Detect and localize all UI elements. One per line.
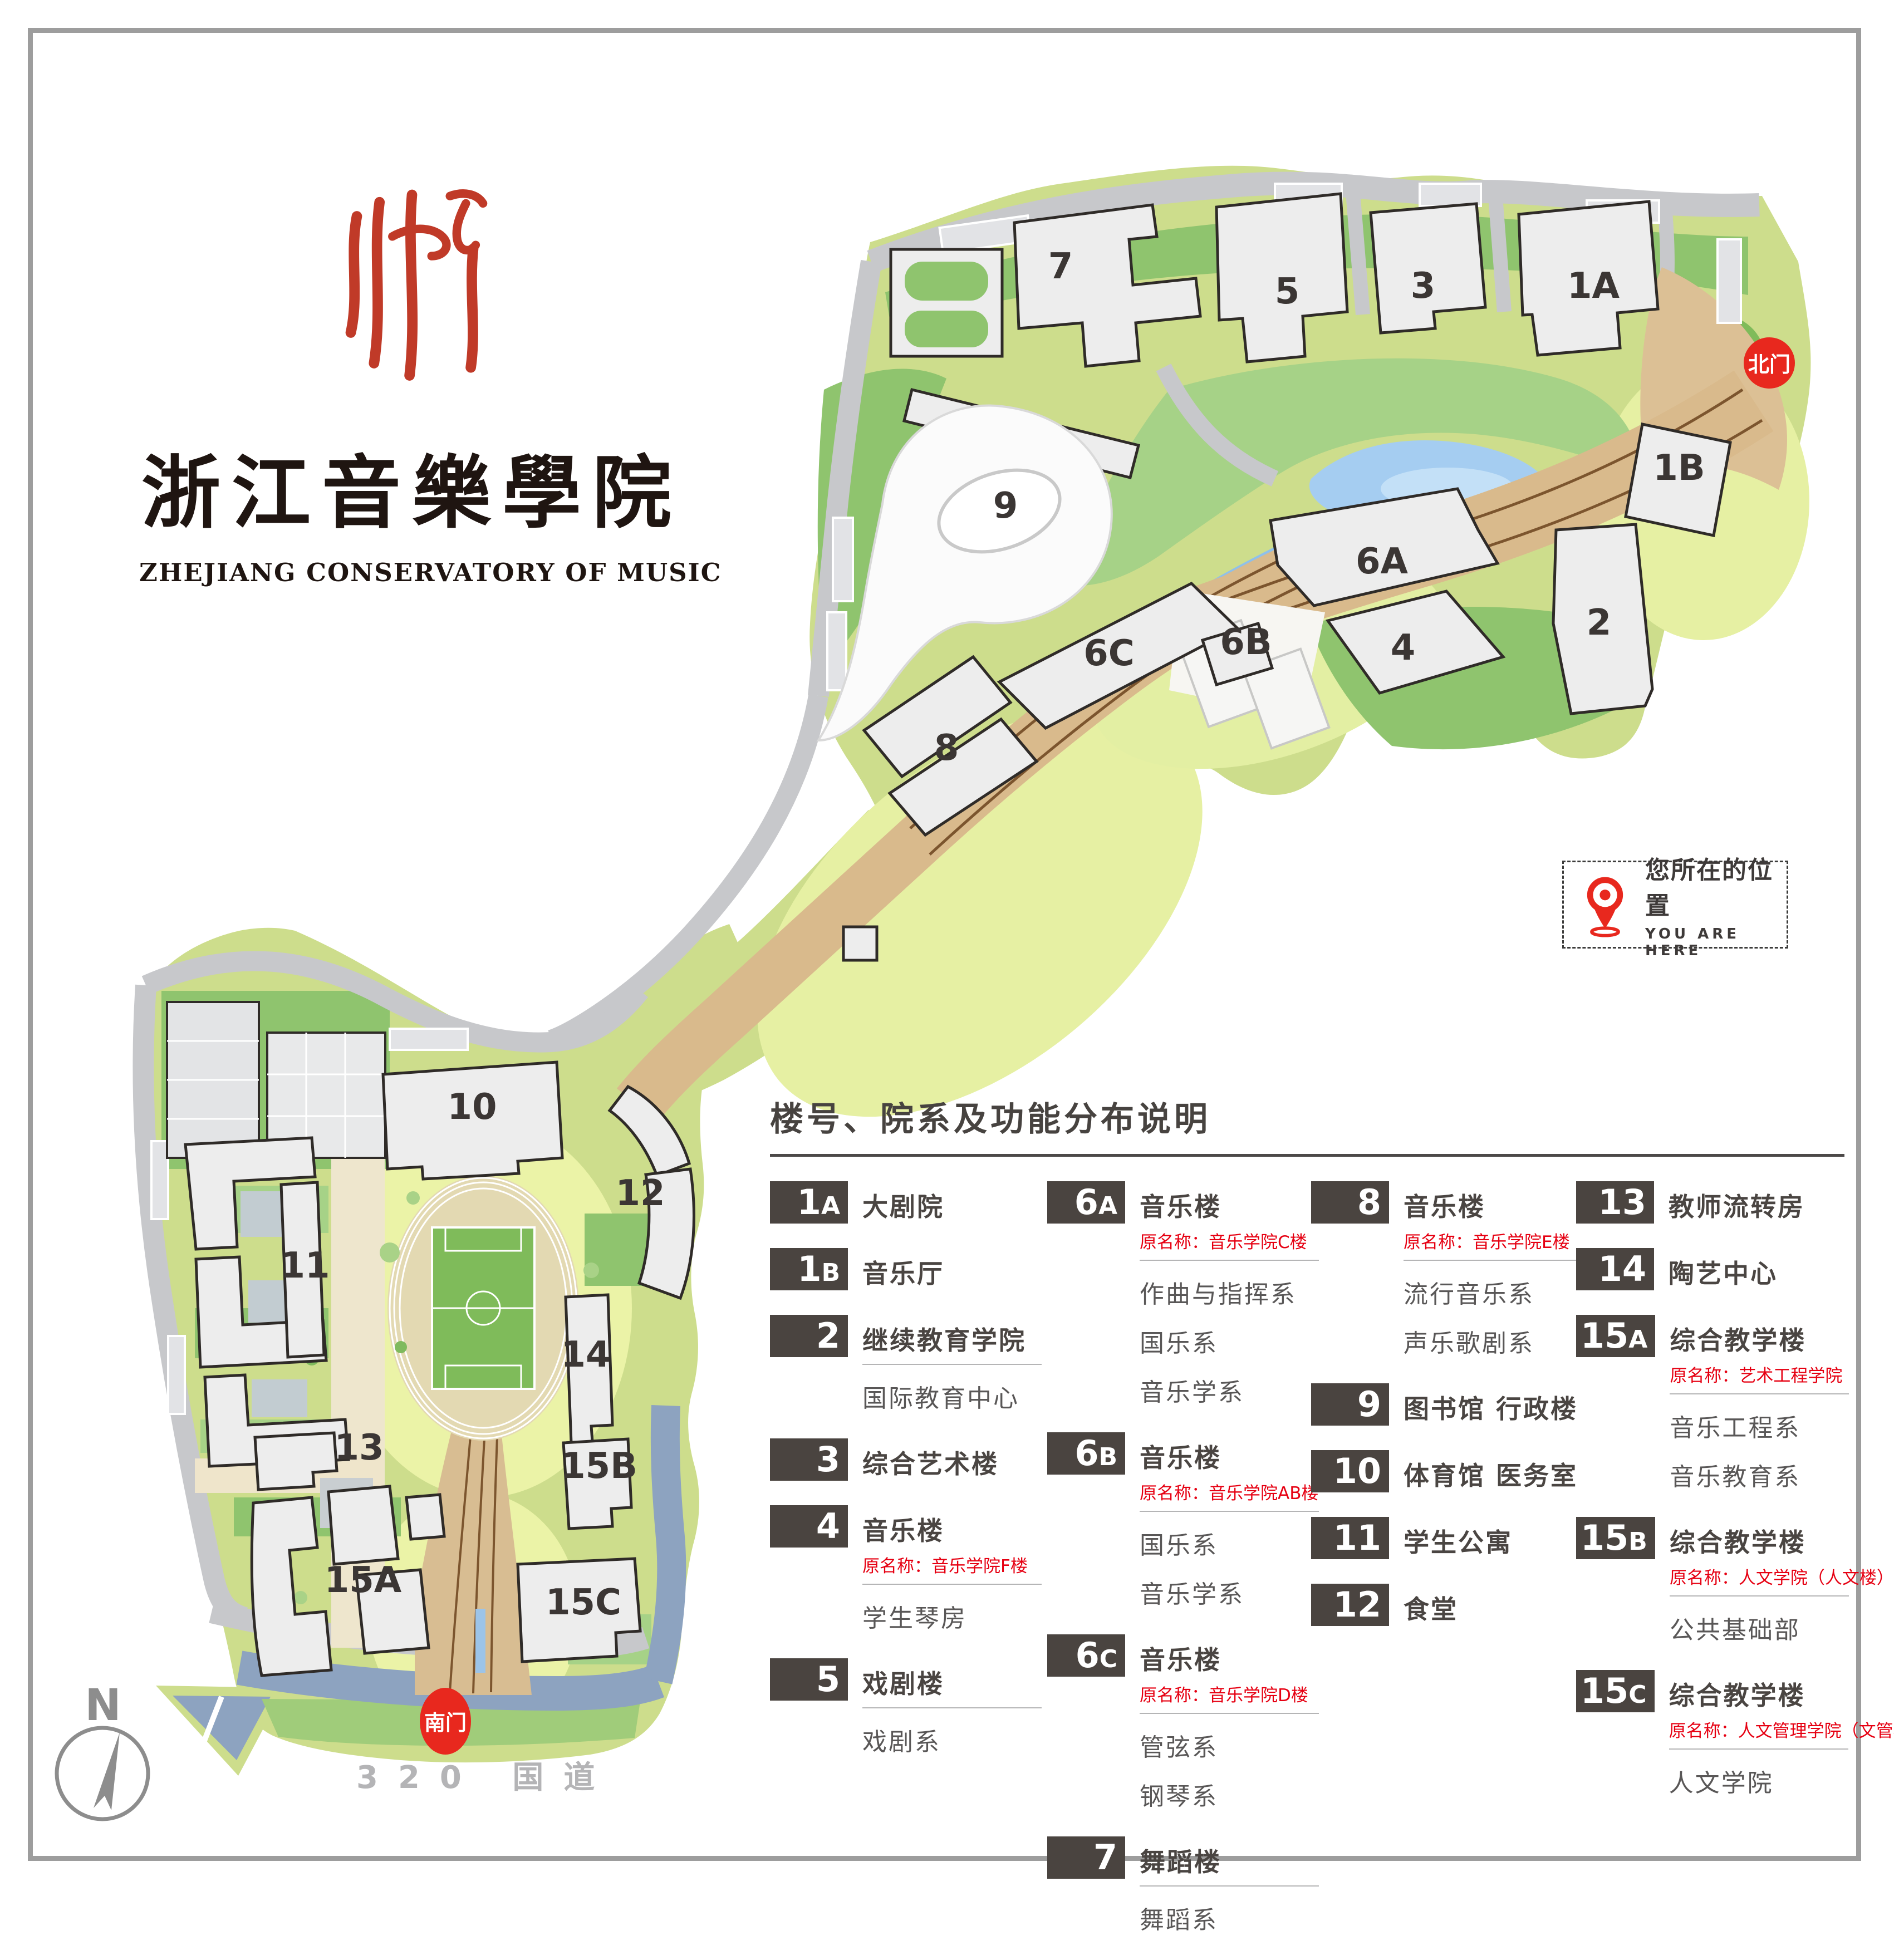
legend-building-name: 音乐楼 [862,1511,1032,1548]
legend-building-name: 学生公寓 [1404,1522,1571,1559]
legend-item-8: 8音乐楼原名称：音乐学院E楼流行音乐系声乐歌剧系 [1311,1181,1573,1359]
compass-n-label: N [85,1681,121,1731]
location-pin-icon [1578,872,1632,937]
legend-entry-9: 图书馆 行政楼 [1404,1383,1573,1426]
legend-building-name: 音乐楼 [1140,1438,1309,1475]
map-label-6C: 6C [1083,633,1135,674]
legend-item-9: 9图书馆 行政楼 [1311,1383,1573,1426]
legend-badge-15A: 15A [1576,1315,1655,1357]
legend-entry-divider [1670,1595,1849,1597]
legend-item-11: 11学生公寓 [1311,1517,1573,1559]
canal [658,1406,671,1681]
legend-entry-divider [1140,1260,1319,1261]
legend-former-name: 原名称：音乐学院C楼 [1140,1228,1309,1253]
map-label-14: 14 [561,1334,610,1376]
building-small-shed [843,927,877,960]
legend-building-name: 体育馆 医务室 [1404,1456,1573,1492]
legend-badge-15B: 15B [1576,1517,1655,1559]
legend-building-name: 继续教育学院 [862,1320,1032,1357]
legend: 楼号、院系及功能分布说明 1A大剧院1B音乐厅2继续教育学院国际教育中心3综合艺… [770,1092,1850,1821]
you-are-here-box: 您所在的位置 YOU ARE HERE [1562,861,1788,949]
compass: N [57,1681,148,1819]
legend-department: 管弦系 [1140,1727,1309,1763]
legend-badge-9: 9 [1311,1383,1389,1426]
legend-item-12: 12食堂 [1311,1584,1573,1626]
legend-item-7: 7舞蹈楼舞蹈系 [1047,1836,1309,1936]
legend-badge-12: 12 [1311,1584,1389,1626]
legend-item-2: 2继续教育学院国际教育中心 [770,1315,1032,1414]
legend-department: 音乐学系 [1140,1574,1309,1610]
legend-badge-5: 5 [770,1658,848,1701]
legend-building-name: 音乐楼 [1140,1187,1309,1224]
basketball-courts [167,1002,259,1158]
legend-department: 作曲与指挥系 [1140,1274,1309,1310]
legend-former-name: 原名称：音乐学院E楼 [1404,1228,1573,1253]
map-label-7: 7 [1048,246,1073,287]
legend-badge-15C: 15C [1576,1670,1655,1712]
legend-badge-4: 4 [770,1505,848,1548]
legend-columns: 1A大剧院1B音乐厅2继续教育学院国际教育中心3综合艺术楼4音乐楼原名称：音乐学… [770,1181,1850,1821]
map-label-15B: 15B [561,1446,637,1487]
legend-former-name: 原名称：人文学院（人文楼） [1670,1564,1838,1589]
legend-former-name: 原名称：音乐学院AB楼 [1140,1479,1309,1504]
legend-badge-11: 11 [1311,1517,1389,1559]
legend-entry-15C: 综合教学楼原名称：人文管理学院（文管楼）人文学院 [1669,1670,1838,1799]
legend-entry-divider [862,1584,1042,1585]
legend-item-5: 5戏剧楼戏剧系 [770,1658,1032,1757]
legend-entry-divider [1669,1748,1848,1750]
athletics-track [387,1176,579,1441]
legend-item-4: 4音乐楼原名称：音乐学院F楼学生琴房 [770,1505,1032,1634]
legend-entry-11: 学生公寓 [1404,1517,1571,1559]
legend-entry-4: 音乐楼原名称：音乐学院F楼学生琴房 [862,1505,1032,1634]
map-label-4: 4 [1391,627,1416,669]
legend-item-15C: 15C综合教学楼原名称：人文管理学院（文管楼）人文学院 [1576,1670,1838,1799]
legend-department: 钢琴系 [1140,1776,1309,1812]
legend-department: 音乐教育系 [1670,1457,1838,1492]
map-label-8: 8 [934,728,959,769]
legend-department: 音乐学系 [1140,1372,1309,1408]
map-label-2: 2 [1587,602,1612,643]
legend-entry-divider [1140,1713,1319,1714]
legend-badge-7: 7 [1047,1836,1125,1879]
legend-former-name: 原名称：音乐学院F楼 [862,1552,1032,1577]
legend-item-6C: 6C音乐楼原名称：音乐学院D楼管弦系钢琴系 [1047,1634,1309,1812]
legend-badge-6C: 6C [1047,1634,1125,1677]
legend-entry-divider [1404,1260,1583,1261]
legend-building-name: 音乐厅 [862,1254,1029,1290]
legend-item-14: 14陶艺中心 [1576,1248,1838,1290]
legend-department: 流行音乐系 [1404,1274,1573,1310]
legend-item-10: 10体育馆 医务室 [1311,1450,1573,1492]
legend-department: 公共基础部 [1670,1610,1838,1645]
legend-entry-1A: 大剧院 [862,1181,1029,1224]
legend-department: 戏剧系 [862,1722,1032,1757]
legend-badge-10: 10 [1311,1450,1389,1492]
legend-entry-divider [1670,1393,1849,1394]
legend-column-4: 13教师流转房14陶艺中心15A综合教学楼原名称：艺术工程学院音乐工程系音乐教育… [1576,1181,1838,1823]
legend-building-name: 教师流转房 [1669,1187,1836,1224]
building-15A-d [406,1495,444,1539]
legend-item-15A: 15A综合教学楼原名称：艺术工程学院音乐工程系音乐教育系 [1576,1315,1838,1492]
legend-entry-5: 戏剧楼戏剧系 [862,1658,1032,1757]
legend-building-name: 综合教学楼 [1670,1522,1838,1559]
legend-item-1A: 1A大剧院 [770,1181,1032,1224]
logo-title-cn: 浙江音樂學院 [139,429,685,543]
map-label-1B: 1B [1653,448,1705,489]
legend-divider [770,1154,1844,1157]
legend-badge-3: 3 [770,1438,848,1481]
legend-entry-12: 食堂 [1404,1584,1571,1626]
legend-entry-divider [1140,1511,1319,1512]
legend-entry-divider [862,1364,1042,1365]
legend-column-2: 6A音乐楼原名称：音乐学院C楼作曲与指挥系国乐系音乐学系6B音乐楼原名称：音乐学… [1047,1181,1309,1960]
legend-entry-3: 综合艺术楼 [862,1438,1029,1481]
legend-item-15B: 15B综合教学楼原名称：人文学院（人文楼）公共基础部 [1576,1517,1838,1645]
legend-department: 舞蹈系 [1140,1900,1309,1936]
legend-entry-14: 陶艺中心 [1669,1248,1836,1290]
legend-department: 音乐工程系 [1670,1408,1838,1443]
legend-building-name: 综合教学楼 [1670,1320,1838,1357]
map-label-9: 9 [993,485,1018,527]
south-gate-badge: 南门 [420,1688,471,1755]
legend-building-name: 图书馆 行政楼 [1404,1389,1573,1426]
legend-entry-10: 体育馆 医务室 [1404,1450,1573,1492]
legend-building-name: 戏剧楼 [862,1664,1032,1701]
map-label-6B: 6B [1220,622,1272,663]
map-label-12: 12 [615,1173,665,1214]
legend-item-1B: 1B音乐厅 [770,1248,1032,1290]
you-are-here-label-cn: 您所在的位置 [1645,850,1787,921]
legend-department: 声乐歌剧系 [1404,1323,1573,1359]
legend-entry-8: 音乐楼原名称：音乐学院E楼流行音乐系声乐歌剧系 [1404,1181,1573,1359]
you-are-here-label-en: YOU ARE HERE [1645,926,1787,959]
legend-entry-6C: 音乐楼原名称：音乐学院D楼管弦系钢琴系 [1140,1634,1309,1812]
legend-building-name: 音乐楼 [1140,1640,1309,1677]
legend-badge-2: 2 [770,1315,848,1357]
legend-entry-divider [1140,1885,1319,1887]
legend-entry-7: 舞蹈楼舞蹈系 [1140,1836,1309,1936]
legend-building-name: 音乐楼 [1404,1187,1573,1224]
logo-block: 浙江音樂學院 ZHEJIANG CONSERVATORY OF MUSIC [139,167,685,587]
north-gate-label: 北门 [1748,352,1790,377]
legend-building-name: 综合艺术楼 [862,1444,1029,1481]
legend-entry-15A: 综合教学楼原名称：艺术工程学院音乐工程系音乐教育系 [1670,1315,1838,1492]
legend-badge-13: 13 [1576,1181,1654,1224]
map-label-10: 10 [447,1087,497,1128]
map-label-3: 3 [1411,266,1436,307]
legend-entry-1B: 音乐厅 [862,1248,1029,1290]
legend-column-3: 8音乐楼原名称：音乐学院E楼流行音乐系声乐歌剧系9图书馆 行政楼10体育馆 医务… [1311,1181,1573,1650]
legend-department: 国际教育中心 [862,1378,1032,1414]
south-gate-label: 南门 [424,1711,467,1735]
compass-circle [57,1728,148,1819]
map-label-6A: 6A [1356,541,1409,582]
legend-building-name: 综合教学楼 [1669,1676,1838,1712]
north-gate-badge: 北门 [1744,337,1795,389]
map-label-13: 13 [334,1427,384,1468]
legend-entry-divider [862,1707,1042,1708]
map-label-1A: 1A [1567,266,1620,307]
legend-entry-2: 继续教育学院国际教育中心 [862,1315,1032,1414]
building-15A-b [328,1486,398,1564]
legend-badge-8: 8 [1311,1181,1389,1224]
legend-entry-6A: 音乐楼原名称：音乐学院C楼作曲与指挥系国乐系音乐学系 [1140,1181,1309,1408]
legend-badge-1B: 1B [770,1248,848,1290]
map-label-5: 5 [1275,271,1300,312]
legend-entry-13: 教师流转房 [1669,1181,1836,1224]
legend-badge-1A: 1A [770,1181,848,1224]
legend-department: 国乐系 [1140,1525,1309,1561]
legend-title: 楼号、院系及功能分布说明 [770,1092,1850,1141]
legend-former-name: 原名称：艺术工程学院 [1670,1362,1838,1387]
legend-entry-6B: 音乐楼原名称：音乐学院AB楼国乐系音乐学系 [1140,1432,1309,1610]
legend-badge-14: 14 [1576,1248,1654,1290]
legend-badge-6A: 6A [1047,1181,1125,1224]
zhejiang-seal-icon [320,167,504,406]
legend-building-name: 舞蹈楼 [1140,1842,1309,1879]
legend-former-name: 原名称：音乐学院D楼 [1140,1681,1309,1706]
legend-former-name: 原名称：人文管理学院（文管楼） [1669,1717,1838,1742]
legend-building-name: 陶艺中心 [1669,1254,1836,1290]
highway-label: 320 国道 [356,1760,615,1796]
map-label-15A: 15A [325,1560,402,1601]
legend-building-name: 食堂 [1404,1589,1571,1626]
legend-item-3: 3综合艺术楼 [770,1438,1032,1481]
legend-entry-15B: 综合教学楼原名称：人文学院（人文楼）公共基础部 [1670,1517,1838,1645]
legend-department: 学生琴房 [862,1598,1032,1634]
legend-badge-6B: 6B [1047,1432,1125,1475]
map-label-11: 11 [280,1245,330,1286]
legend-department: 人文学院 [1669,1763,1838,1799]
legend-item-13: 13教师流转房 [1576,1181,1838,1224]
legend-item-6B: 6B音乐楼原名称：音乐学院AB楼国乐系音乐学系 [1047,1432,1309,1610]
legend-building-name: 大剧院 [862,1187,1029,1224]
map-label-15C: 15C [546,1582,621,1623]
legend-column-1: 1A大剧院1B音乐厅2继续教育学院国际教育中心3综合艺术楼4音乐楼原名称：音乐学… [770,1181,1032,1782]
logo-title-en: ZHEJIANG CONSERVATORY OF MUSIC [139,558,685,587]
legend-department: 国乐系 [1140,1323,1309,1359]
legend-item-6A: 6A音乐楼原名称：音乐学院C楼作曲与指挥系国乐系音乐学系 [1047,1181,1309,1408]
